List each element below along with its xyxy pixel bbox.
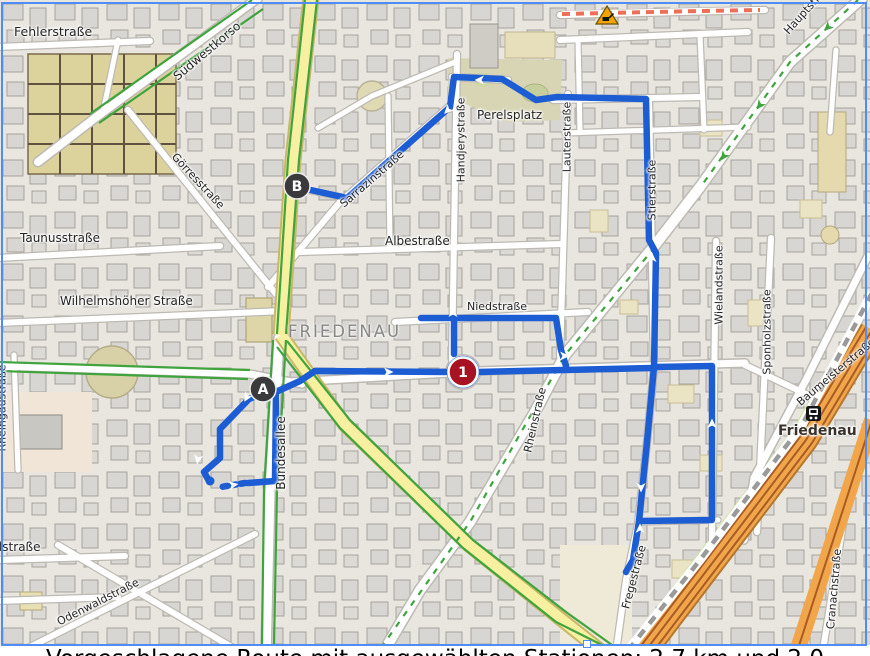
- map-graphics: B A 1: [0, 0, 870, 645]
- svg-text:B: B: [292, 179, 303, 195]
- svg-text:1: 1: [458, 365, 468, 381]
- route-summary-caption: Vorgeschlagene Route mit ausgewählten St…: [0, 646, 870, 656]
- screenshot-stage: B A 1 Fehlerstraße Südwestkorso Görresst…: [0, 0, 870, 656]
- marker-stop-1[interactable]: 1: [449, 358, 478, 387]
- school-building: [470, 24, 498, 68]
- marker-b[interactable]: B: [284, 173, 310, 199]
- svg-text:A: A: [258, 382, 269, 398]
- map-canvas[interactable]: B A 1 Fehlerstraße Südwestkorso Görresst…: [0, 0, 870, 645]
- via-point-dot: [206, 477, 215, 486]
- marker-a[interactable]: A: [250, 376, 276, 402]
- station-icon: [806, 406, 821, 421]
